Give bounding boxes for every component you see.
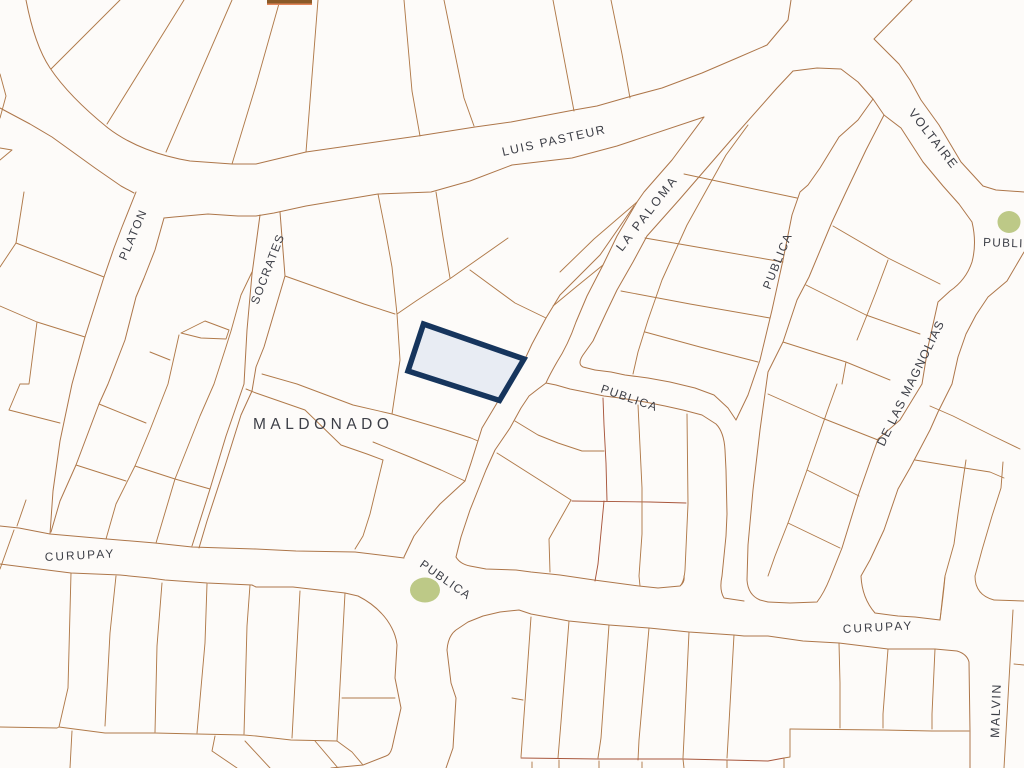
svg-text:MALDONADO: MALDONADO bbox=[253, 416, 393, 433]
svg-text:MALVIN: MALVIN bbox=[988, 683, 1004, 738]
svg-text:PUBLICA: PUBLICA bbox=[983, 235, 1024, 251]
